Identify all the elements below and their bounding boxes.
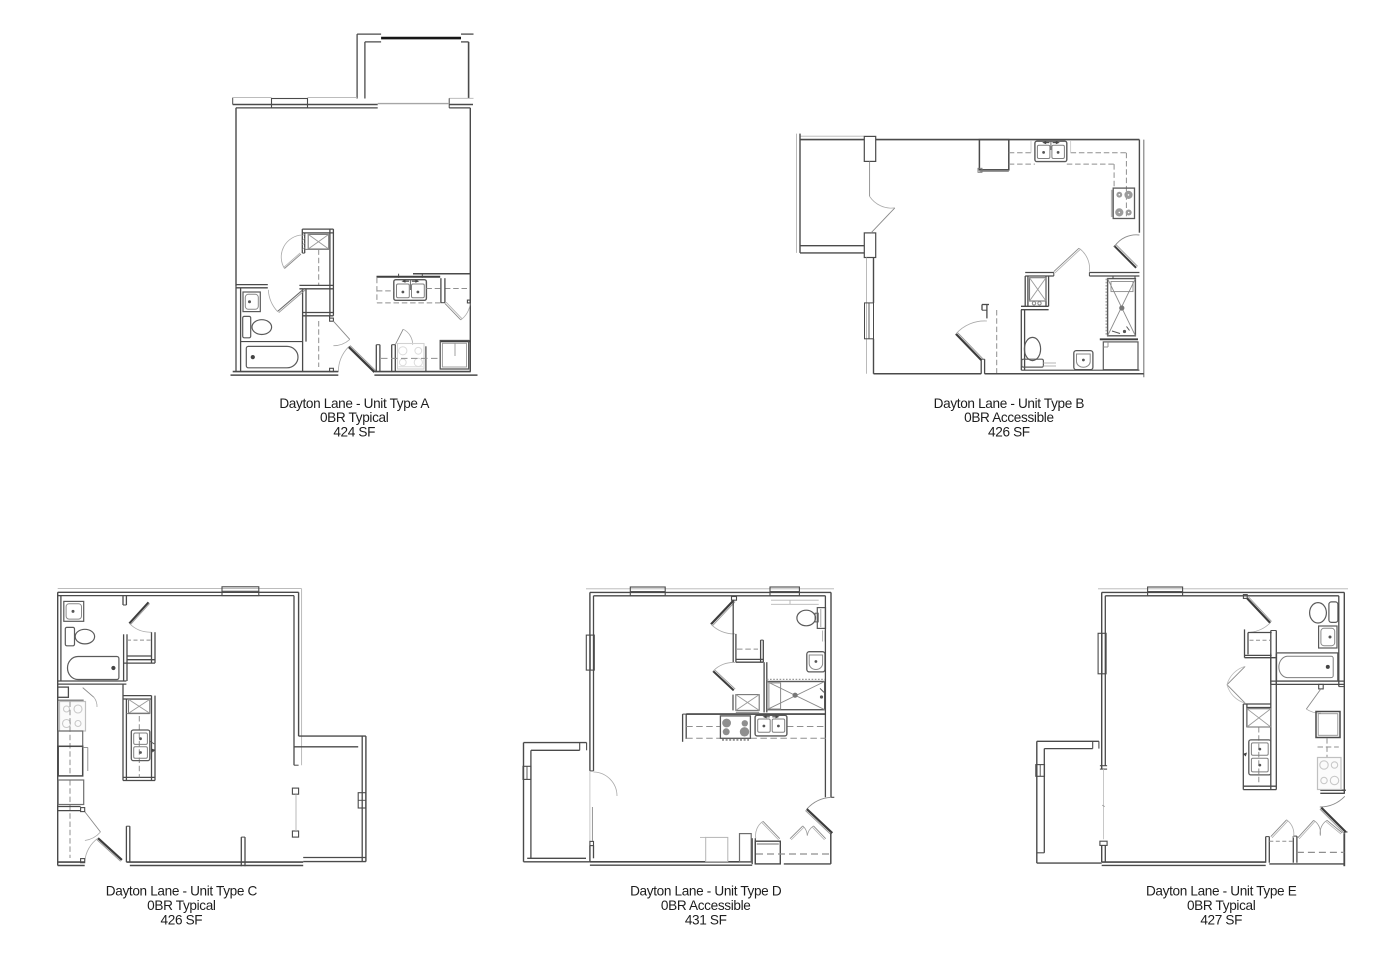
svg-text:426 SF: 426 SF: [161, 913, 203, 928]
svg-text:Dayton Lane - Unit Type D: Dayton Lane - Unit Type D: [630, 884, 782, 899]
svg-text:Dayton Lane - Unit Type E: Dayton Lane - Unit Type E: [1146, 884, 1297, 899]
svg-text:Dayton Lane - Unit Type C: Dayton Lane - Unit Type C: [106, 884, 258, 899]
svg-text:0BR Accessible: 0BR Accessible: [964, 410, 1054, 425]
svg-text:431 SF: 431 SF: [685, 913, 727, 928]
svg-text:427 SF: 427 SF: [1200, 913, 1242, 928]
svg-text:0BR Typical: 0BR Typical: [1187, 898, 1256, 913]
svg-text:Dayton Lane - Unit Type B: Dayton Lane - Unit Type B: [934, 396, 1085, 411]
svg-text:0BR Typical: 0BR Typical: [147, 898, 216, 913]
svg-text:426 SF: 426 SF: [988, 424, 1030, 439]
svg-text:Dayton Lane - Unit Type A: Dayton Lane - Unit Type A: [279, 396, 430, 411]
svg-text:0BR Typical: 0BR Typical: [320, 410, 389, 425]
svg-text:0BR Accessible: 0BR Accessible: [661, 898, 751, 913]
svg-text:424 SF: 424 SF: [333, 424, 375, 439]
